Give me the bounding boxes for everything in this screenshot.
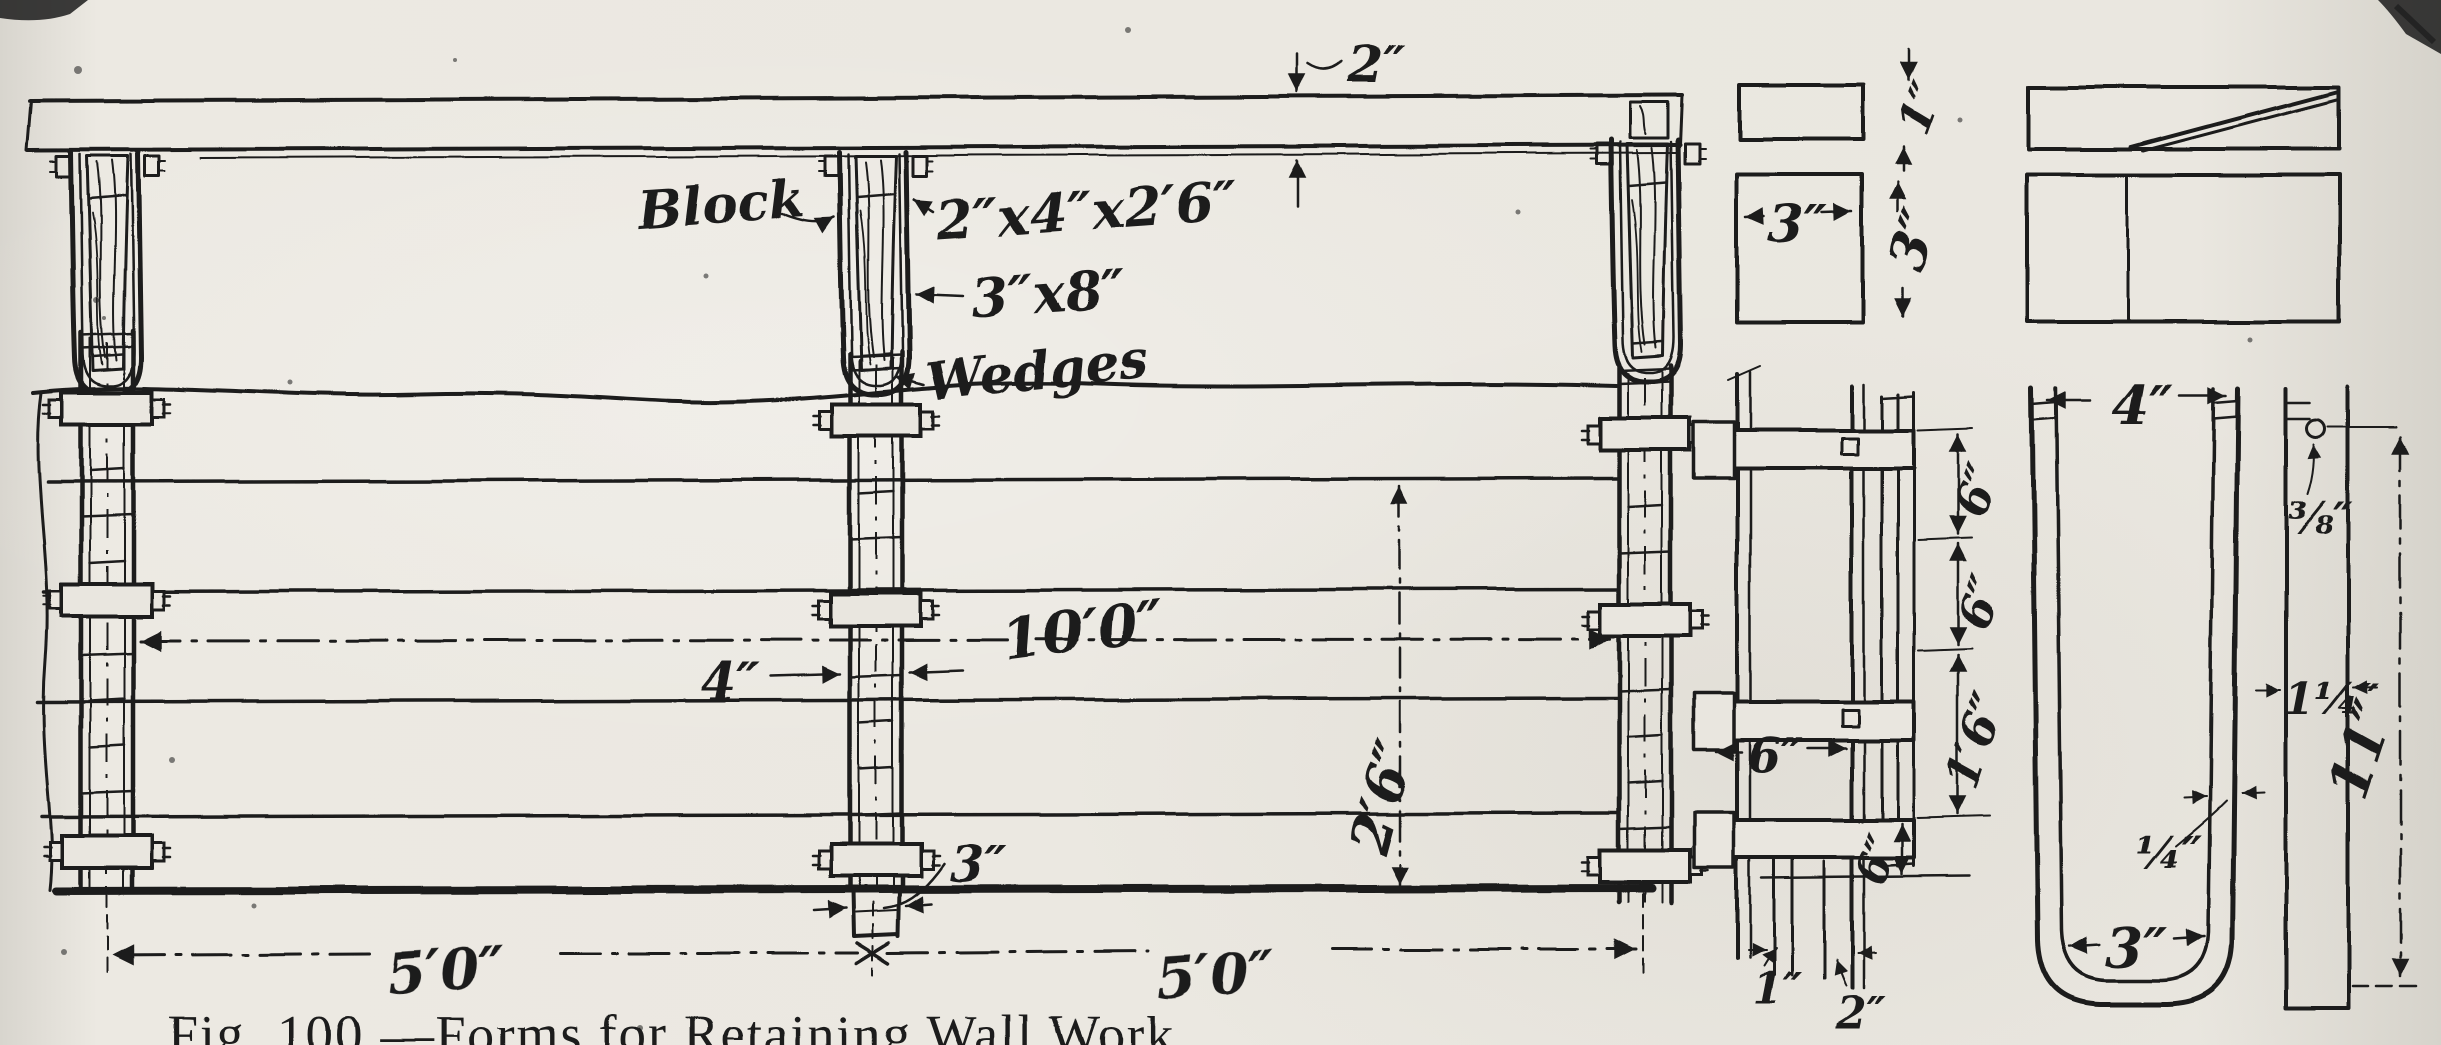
plan-thickness-label: 1″ (1888, 75, 1953, 140)
board-gap-label: 6″ (1748, 728, 1803, 784)
post-side-view (1694, 366, 1990, 988)
dim-span-line (140, 639, 1610, 641)
wedge-assembly-center (819, 152, 933, 394)
post-foot-arrow-r (906, 904, 932, 906)
wedges-label: Wedges (923, 329, 1150, 413)
plan-depth-label: 3″ (1876, 203, 1952, 278)
spacing-top-label: 6″ (1943, 456, 2011, 523)
post-foot-arrow-l (814, 908, 846, 910)
figure-caption: Fig. 100.—Forms for Retaining Wall Work. (168, 1004, 1191, 1045)
retaining-wall-form-drawing: 2″ Block 2″x4″x2′6″ 3″x8″ Wedges (0, 0, 2441, 1045)
sheathing1-label: 1″ (1752, 964, 1803, 1015)
post-foot-label: 3″ (950, 835, 1008, 894)
wedge-assembly-right (1591, 102, 1705, 382)
strap-inner-arrow-r (2174, 936, 2204, 938)
span-label: 10′0″ (999, 587, 1168, 674)
wedge-size-leader (916, 294, 962, 296)
wedge-plan-view (2027, 175, 2339, 322)
post-width-label: 4″ (700, 652, 759, 713)
dim-plank-thickness (1297, 54, 1342, 206)
bay-right-label: 5′0″ (1154, 938, 1276, 1012)
sheathing2-label: 2″ (1835, 988, 1887, 1039)
strap-front-view (2032, 388, 2238, 1004)
strap-thickness-arrow-l (2184, 797, 2206, 798)
bar-width-arrow-r (2354, 686, 2378, 687)
plank-thickness-label: 2″ (1347, 35, 1406, 94)
top-plank (27, 95, 1682, 158)
center-post-foot (853, 890, 899, 936)
leg-spread-label: 4″ (2112, 373, 2174, 437)
strap-thickness-label: ¼″ (2136, 828, 2202, 879)
strap-inner-arrow-l (2070, 944, 2100, 946)
post-width-arrow-l (770, 674, 840, 676)
plan-width-label: 3″ (1768, 194, 1827, 255)
scanned-figure-page: 2″ Block 2″x4″x2′6″ 3″x8″ Wedges (0, 0, 2441, 1045)
batten-plan-dims (1746, 50, 1908, 316)
hole-diameter-label: ⅜″ (2288, 494, 2354, 545)
wedge-side-view (2029, 87, 2339, 151)
post-width-arrow-r (910, 670, 962, 672)
ground-line (34, 383, 1616, 402)
spacing-main-label: 1′6″ (1935, 686, 2016, 795)
strap-thickness-arrow-r (2242, 793, 2264, 794)
block-size-leader (914, 200, 934, 212)
strap-inner-width-label: 3″ (2106, 915, 2168, 979)
form-height-label: 2′6″ (1336, 733, 1427, 860)
hole-leader (2308, 444, 2314, 494)
bay-left-label: 5′0″ (384, 934, 506, 1008)
block-size-label: 2″x4″x2′6″ (933, 168, 1239, 253)
wedge-size-label: 3″x8″ (968, 256, 1128, 331)
block-label: Block (635, 169, 807, 242)
